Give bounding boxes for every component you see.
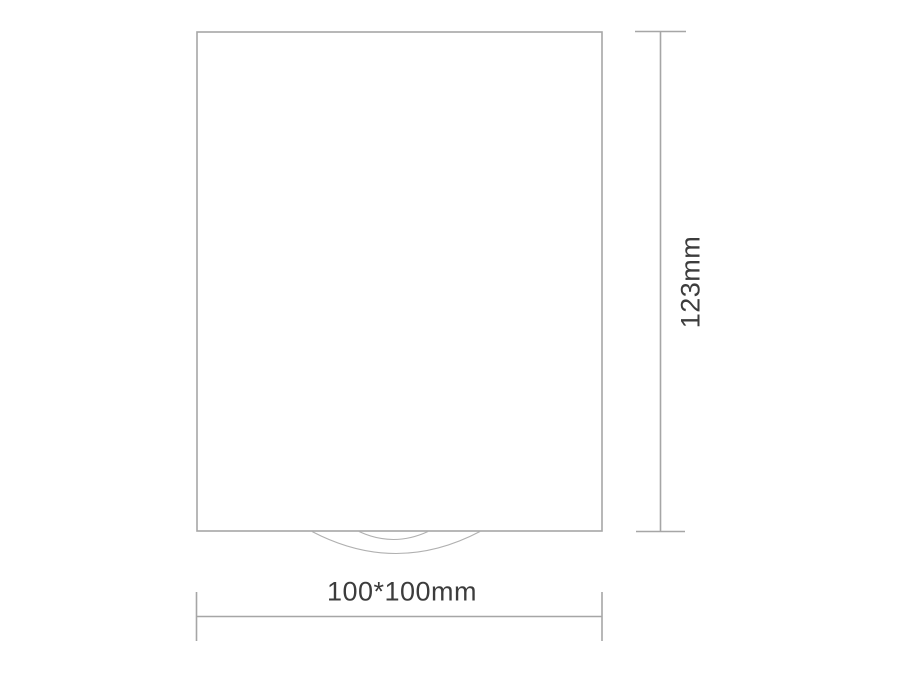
diagram-canvas: 123mm 100*100mm [0, 0, 900, 675]
fixture-body-outline [197, 32, 602, 531]
lens-inner-arc [359, 532, 428, 540]
height-dimension-label: 123mm [675, 236, 705, 329]
dimension-drawing: 123mm 100*100mm [0, 0, 900, 675]
width-dimension-label: 100*100mm [327, 576, 477, 606]
lens-outer-arc [312, 532, 480, 554]
